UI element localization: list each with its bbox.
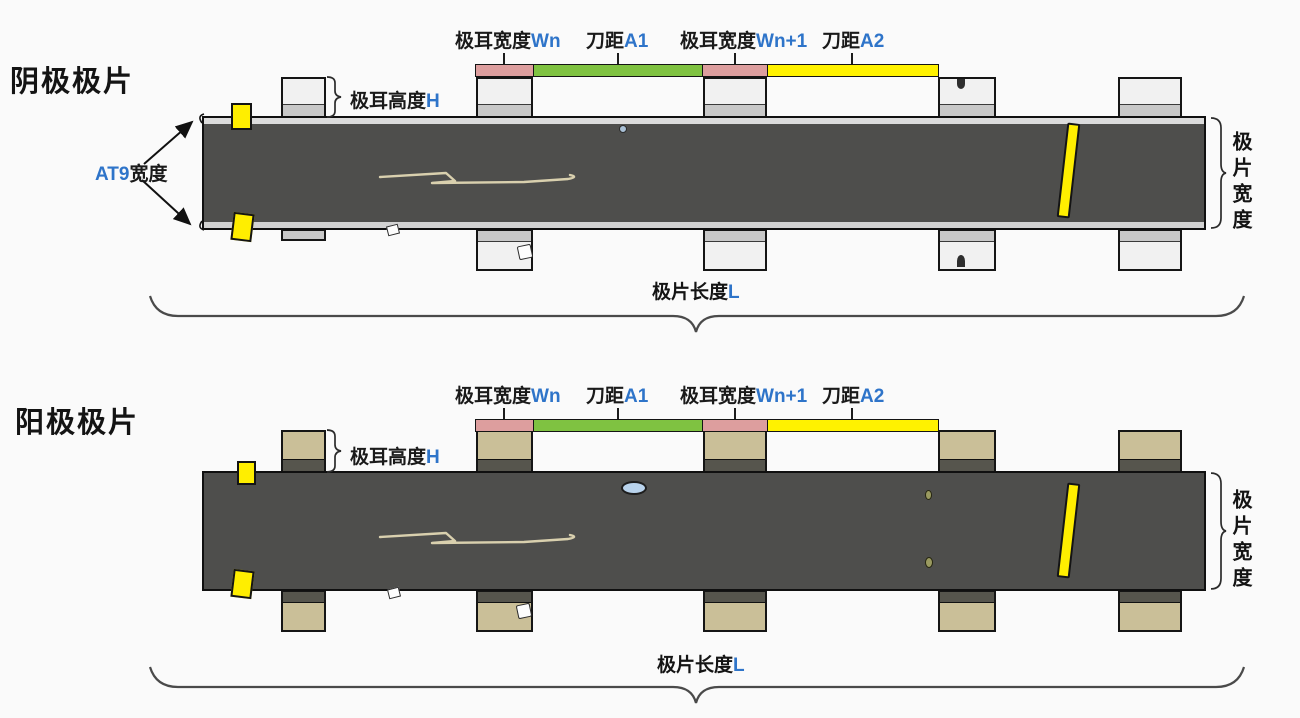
cathode-sheet-diagram: 阴极极片 极耳宽度Wn 刀距A1 极耳宽度Wn+1 刀距A2 (0, 0, 1300, 355)
tab-height-bracket (327, 76, 343, 118)
electrode-tab (1118, 77, 1182, 118)
knife-pitch-a1-bar (532, 64, 704, 77)
tab-coating-band (940, 231, 994, 242)
anode-sheet-diagram: 阳极极片 极耳宽度Wn 刀距A1 极耳宽度Wn+1 刀距A2 极耳高度H 极片宽… (0, 355, 1300, 718)
tab-coating-band (940, 104, 994, 116)
tab-coating-band (1120, 231, 1180, 242)
bar-tick (734, 408, 736, 419)
electrode-tab (1118, 229, 1182, 271)
tab-coating-band (940, 592, 994, 603)
tab-height-label: 极耳高度H (350, 442, 440, 469)
yellow-defect-marker (237, 461, 256, 485)
tab-notch-defect (957, 79, 965, 89)
tab-width-wn-label: 极耳宽度Wn (455, 381, 561, 408)
tab-coating-band (478, 459, 531, 471)
electrode-tab (938, 590, 996, 632)
tab-coating-band (478, 231, 531, 242)
pinhole-defect (925, 490, 932, 500)
bar-tick (503, 53, 505, 64)
yellow-defect-marker (230, 212, 254, 242)
electrode-tab (938, 430, 996, 473)
pinhole-defect (619, 125, 627, 133)
knife-pitch-a2-bar (766, 64, 939, 77)
electrode-tab (281, 430, 326, 473)
electrode-tab (476, 77, 533, 118)
electrode-tab (703, 229, 767, 271)
at9-width-label: AT9宽度 (95, 159, 168, 186)
yellow-defect-marker (231, 103, 252, 130)
tab-width-wn1-bar (702, 64, 768, 77)
tab-notch-defect (957, 255, 965, 267)
tab-coating-band (283, 104, 324, 116)
edge-notch-defect (386, 224, 400, 237)
knife-pitch-a1-label: 刀距A1 (586, 381, 648, 408)
bar-tick (734, 53, 736, 64)
bar-tick (851, 408, 853, 419)
sheet-width-bracket (1211, 471, 1227, 591)
diagram-title: 阳极极片 (15, 399, 139, 441)
electrode-tab (703, 77, 767, 118)
knife-pitch-a2-label: 刀距A2 (822, 381, 884, 408)
tab-coating-band (478, 592, 531, 603)
tab-coating-band (478, 104, 531, 116)
electrode-tab (703, 590, 767, 632)
electrode-strip (202, 116, 1206, 230)
tab-width-wn1-bar (702, 419, 768, 432)
tab-coating-band (705, 104, 765, 116)
tab-coating-band (1120, 459, 1180, 471)
electrode-tab-stub (281, 229, 326, 241)
electrode-tab (281, 77, 326, 118)
knife-pitch-a2-bar (766, 419, 939, 432)
electrode-tab (1118, 590, 1182, 632)
sheet-width-label: 极片宽度 (1226, 489, 1255, 593)
electrode-tab (938, 77, 996, 118)
tab-coating-band (940, 459, 994, 471)
folded-corner-defect (516, 603, 533, 620)
tab-coating-band (705, 592, 765, 603)
bar-tick (503, 408, 505, 419)
sheet-length-brace (148, 661, 1248, 707)
sheet-length-brace (148, 290, 1248, 336)
electrode-strip (202, 471, 1206, 591)
bar-tick (617, 408, 619, 419)
folded-corner-defect (517, 244, 534, 261)
electrode-tab (476, 430, 533, 473)
tab-width-wn1-label: 极耳宽度Wn+1 (680, 381, 807, 408)
sheet-width-label: 极片宽度 (1226, 131, 1255, 235)
pinhole-defect (925, 557, 933, 568)
tab-width-wn1-label: 极耳宽度Wn+1 (680, 26, 807, 53)
bar-tick (617, 53, 619, 64)
electrode-tab (1118, 430, 1182, 473)
tab-coating-band (283, 459, 324, 471)
scratch-defect (376, 526, 586, 550)
tab-width-wn-label: 极耳宽度Wn (455, 26, 561, 53)
yellow-defect-marker (230, 569, 254, 599)
scratch-defect (376, 166, 586, 190)
electrode-tab (281, 590, 326, 632)
knife-pitch-a2-label: 刀距A2 (822, 26, 884, 53)
tab-width-wn-bar (475, 64, 534, 77)
edge-notch-defect (387, 587, 401, 600)
tab-coating-band (1120, 592, 1180, 603)
tab-coating-band (1120, 104, 1180, 116)
bubble-defect (621, 481, 647, 495)
tab-coating-band (705, 459, 765, 471)
tab-height-bracket (327, 429, 343, 473)
bar-tick (851, 53, 853, 64)
electrode-tab (938, 229, 996, 271)
electrode-tab (703, 430, 767, 473)
tab-coating-band (283, 592, 324, 603)
tab-width-wn-bar (475, 419, 534, 432)
tab-coating-band (705, 231, 765, 242)
foil-edge-band (204, 222, 1204, 228)
knife-pitch-a1-label: 刀距A1 (586, 26, 648, 53)
foil-edge-band (204, 118, 1204, 124)
knife-pitch-a1-bar (532, 419, 704, 432)
tab-height-label: 极耳高度H (350, 86, 440, 113)
diagram-title: 阴极极片 (10, 58, 134, 100)
sheet-width-bracket (1211, 116, 1227, 230)
